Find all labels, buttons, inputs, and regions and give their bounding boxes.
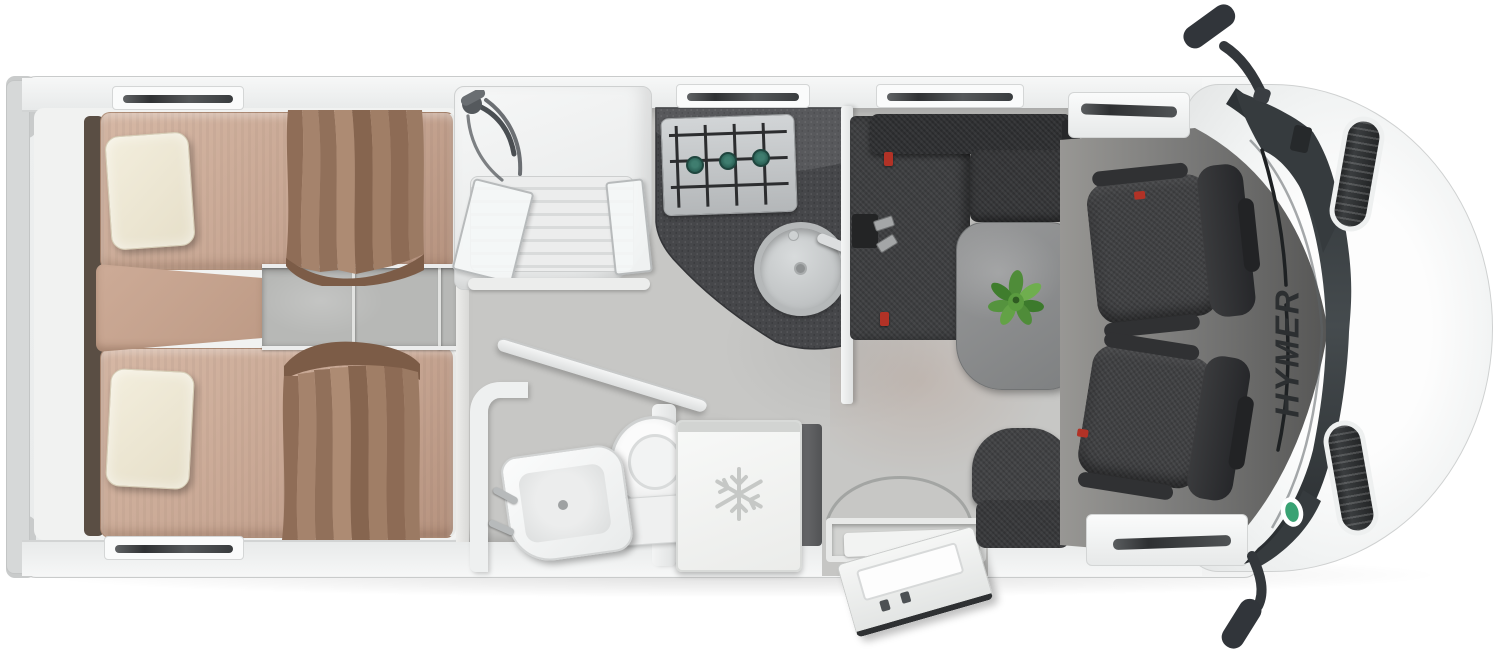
seatbelt-strap [852,214,878,248]
rooflight-bedroom-bottom [104,536,244,560]
plant [986,268,1046,326]
hob-burner-3 [752,149,770,167]
hob-burner-2 [719,152,737,170]
hob-burner-1 [686,156,704,174]
seatbelt-guide [1077,428,1089,438]
side-mirror-passenger-icon [1190,548,1300,650]
snowflake-icon [711,466,767,522]
basin-drain [558,500,568,510]
curtain-bottom [276,336,426,540]
seatbelt-guide [1134,191,1146,200]
door-handle [879,599,891,612]
rear-bumper [6,80,30,574]
rooflight-lounge [876,84,1024,108]
window-glass [887,93,1013,101]
window-glass [115,545,233,553]
sink-drain [794,262,807,275]
pillow-bottom [105,368,195,490]
cab-door-sill-driver [1068,92,1190,138]
snowflake-spokes [717,469,760,519]
curtain-folds [286,110,424,286]
shower-sill [468,278,650,290]
rooflight-kitchen [676,84,810,108]
windscreen-glass-top [1235,90,1341,253]
seatbelt-anchor [884,152,893,166]
step-edge [438,268,441,350]
motorhome-floorplan: HYMER [0,0,1500,650]
curtain-top [282,110,428,286]
side-mirror-driver-icon [1180,0,1300,110]
center-cushion [96,264,264,352]
rooflight-bedroom-top [112,86,244,110]
window-glass [687,93,799,101]
hymer-logo: HYMER [1268,246,1308,460]
curtain-folds [282,342,420,540]
fridge-seal [678,422,800,432]
toilet-seat [628,434,682,490]
plant-leaves [988,269,1045,326]
pillow-top [104,131,196,251]
hymer-logo-text: HYMER [1269,288,1307,417]
door-handle [900,591,912,604]
cab-door-window [1081,103,1177,117]
window-glass [123,95,233,103]
seatbelt-anchor [880,312,889,326]
sink-plug [788,230,799,241]
